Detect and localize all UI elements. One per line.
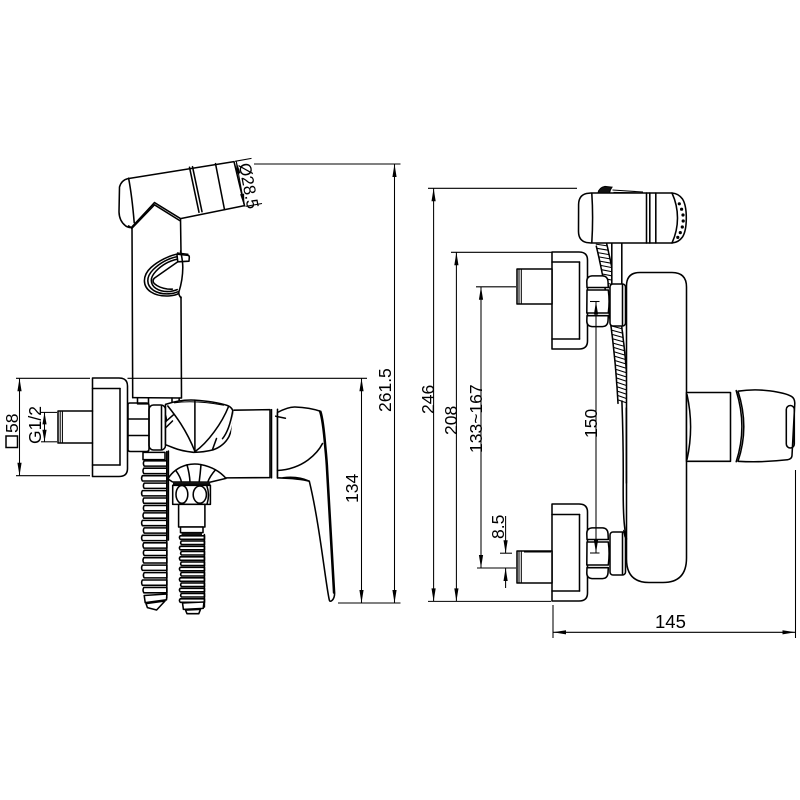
svg-text:134: 134 [342,474,362,503]
svg-text:150: 150 [581,409,601,438]
svg-text:208: 208 [441,406,461,435]
svg-text:246: 246 [418,385,438,414]
svg-text:133~167: 133~167 [466,384,486,453]
svg-text:8.5: 8.5 [488,515,508,539]
svg-text:145: 145 [655,611,686,632]
svg-text:G1/2: G1/2 [25,406,45,444]
svg-text:261.5: 261.5 [375,368,395,412]
svg-text:58: 58 [2,414,22,433]
